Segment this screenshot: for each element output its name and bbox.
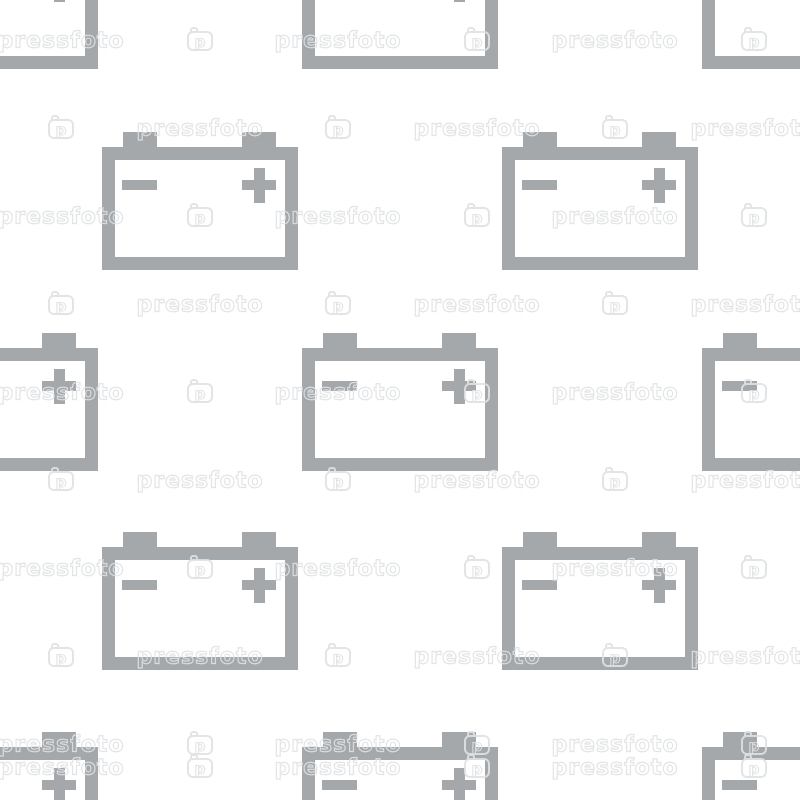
battery-terminal-left [323, 333, 357, 349]
battery-terminal-right [442, 333, 476, 349]
watermark-camera-logo-icon: p [325, 647, 351, 667]
watermark-logo-letter: p [50, 121, 72, 137]
watermark-camera-logo-icon: p [48, 471, 74, 491]
watermark-logo-letter: p [189, 737, 211, 753]
watermark-text: pressfoto [551, 381, 678, 406]
battery-body [0, 0, 98, 69]
car-battery-icon [302, 0, 498, 69]
battery-body [302, 747, 498, 800]
watermark-camera-logo-icon: p [187, 735, 213, 755]
watermark-logo-letter: p [189, 33, 211, 49]
watermark-text: pressfoto [690, 469, 800, 494]
watermark-logo-letter: p [743, 561, 765, 577]
watermark-logo-letter: p [327, 473, 349, 489]
car-battery-icon [102, 532, 298, 670]
watermark-camera-logo-icon: p [187, 31, 213, 51]
battery-terminal-left [723, 732, 757, 748]
battery-body [502, 147, 698, 270]
battery-body [0, 747, 98, 800]
seamless-pattern-canvas: pressfoto p pressfoto p pressfoto p p pr… [0, 0, 800, 800]
watermark-camera-logo-icon: p [48, 647, 74, 667]
car-battery-icon [502, 532, 698, 670]
watermark-camera-logo-icon: p [741, 559, 767, 579]
watermark-camera-logo-icon: p [48, 295, 74, 315]
battery-body [302, 348, 498, 471]
minus-sign [322, 381, 357, 391]
watermark-camera-logo-icon: p [325, 471, 351, 491]
watermark-logo-letter: p [327, 649, 349, 665]
battery-terminal-right [642, 532, 676, 548]
watermark-camera-logo-icon: p [187, 383, 213, 403]
watermark-logo-letter: p [189, 760, 211, 776]
watermark-text: pressfoto [136, 293, 263, 318]
watermark-logo-letter: p [50, 297, 72, 313]
car-battery-icon [0, 0, 98, 69]
battery-body [102, 147, 298, 270]
battery-terminal-left [123, 532, 157, 548]
car-battery-icon [0, 333, 98, 471]
watermark-text: pressfoto [551, 29, 678, 54]
battery-terminal-left [123, 132, 157, 148]
battery-terminal-right [42, 333, 76, 349]
battery-body [102, 547, 298, 670]
plus-sign-vertical-bar [454, 369, 465, 404]
battery-terminal-right [442, 732, 476, 748]
minus-sign [522, 580, 557, 590]
battery-terminal-right [642, 132, 676, 148]
watermark-text: pressfoto [551, 733, 678, 758]
plus-sign-vertical-bar [654, 168, 665, 203]
car-battery-icon [102, 132, 298, 270]
watermark-logo-letter: p [743, 209, 765, 225]
car-battery-icon [702, 333, 800, 471]
battery-terminal-left [723, 333, 757, 349]
watermark-logo-letter: p [604, 297, 626, 313]
watermark-camera-logo-icon: p [602, 471, 628, 491]
plus-sign-vertical-bar [254, 568, 265, 603]
battery-body [502, 547, 698, 670]
car-battery-icon [702, 0, 800, 69]
battery-body [302, 0, 498, 69]
plus-sign-vertical-bar [54, 768, 65, 800]
car-battery-icon [302, 732, 498, 800]
watermark-text: pressfoto [413, 469, 540, 494]
plus-sign-vertical-bar [54, 0, 65, 2]
battery-body [0, 348, 98, 471]
watermark-text: pressfoto [690, 293, 800, 318]
minus-sign [722, 780, 757, 790]
car-battery-icon [302, 333, 498, 471]
watermark-camera-logo-icon: p [741, 207, 767, 227]
battery-body [702, 348, 800, 471]
watermark-logo-letter: p [50, 649, 72, 665]
battery-terminal-left [323, 732, 357, 748]
car-battery-icon [702, 732, 800, 800]
minus-sign [522, 180, 557, 190]
battery-terminal-right [242, 532, 276, 548]
watermark-camera-logo-icon: p [464, 207, 490, 227]
battery-body [702, 0, 800, 69]
battery-body [702, 747, 800, 800]
minus-sign [322, 780, 357, 790]
watermark-logo-letter: p [466, 209, 488, 225]
watermark-text: pressfoto [551, 756, 678, 781]
watermark-text: pressfoto [690, 645, 800, 670]
car-battery-icon [0, 732, 98, 800]
watermark-camera-logo-icon: p [325, 119, 351, 139]
battery-terminal-right [242, 132, 276, 148]
watermark-camera-logo-icon: p [187, 758, 213, 778]
plus-sign-vertical-bar [654, 568, 665, 603]
watermark-logo-letter: p [466, 561, 488, 577]
plus-sign-vertical-bar [54, 369, 65, 404]
battery-terminal-right [42, 732, 76, 748]
plus-sign-vertical-bar [254, 168, 265, 203]
battery-terminal-left [523, 132, 557, 148]
watermark-text: pressfoto [136, 469, 263, 494]
watermark-logo-letter: p [604, 473, 626, 489]
minus-sign [122, 580, 157, 590]
car-battery-icon [502, 132, 698, 270]
minus-sign [722, 381, 757, 391]
watermark-text: pressfoto [690, 117, 800, 142]
watermark-camera-logo-icon: p [602, 295, 628, 315]
watermark-camera-logo-icon: p [325, 295, 351, 315]
watermark-camera-logo-icon: p [464, 559, 490, 579]
minus-sign [122, 180, 157, 190]
plus-sign-vertical-bar [454, 0, 465, 2]
battery-terminal-left [523, 532, 557, 548]
plus-sign-vertical-bar [454, 768, 465, 800]
watermark-logo-letter: p [189, 385, 211, 401]
watermark-camera-logo-icon: p [48, 119, 74, 139]
watermark-logo-letter: p [327, 121, 349, 137]
watermark-text: pressfoto [413, 293, 540, 318]
watermark-logo-letter: p [327, 297, 349, 313]
watermark-logo-letter: p [50, 473, 72, 489]
